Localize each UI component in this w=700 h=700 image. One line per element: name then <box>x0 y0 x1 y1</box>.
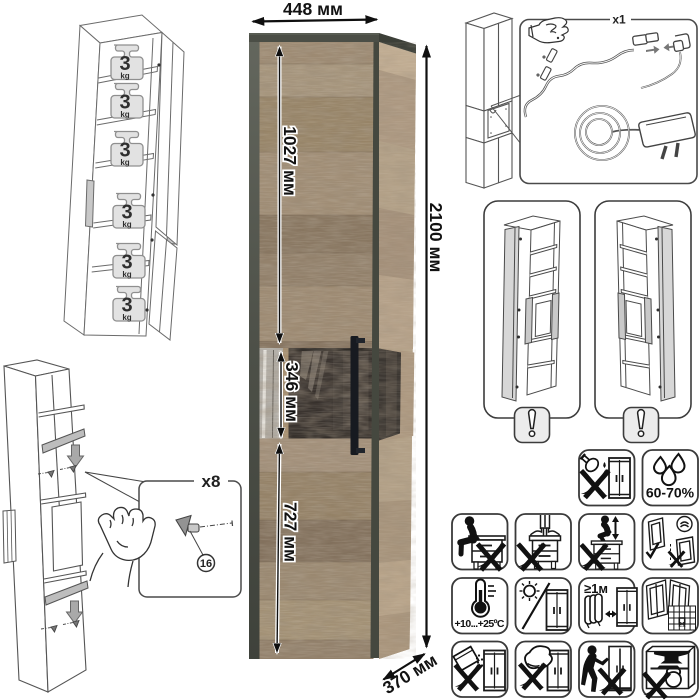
svg-text:60-70%: 60-70% <box>646 485 695 501</box>
svg-text:21: 21 <box>678 622 686 629</box>
svg-text:448 мм: 448 мм <box>283 0 343 19</box>
svg-text:346 мм: 346 мм <box>282 362 302 422</box>
svg-text:2100 мм: 2100 мм <box>426 203 446 273</box>
svg-text:x8: x8 <box>202 472 221 491</box>
svg-text:370 мм: 370 мм <box>379 650 441 698</box>
svg-text:16: 16 <box>200 558 212 570</box>
svg-text:+10...+25ºC: +10...+25ºC <box>455 618 505 630</box>
svg-text:≥1м: ≥1м <box>584 581 608 596</box>
svg-text:1027 мм: 1027 мм <box>280 126 300 196</box>
svg-text:727 мм: 727 мм <box>281 502 301 562</box>
svg-text:x1: x1 <box>612 13 626 27</box>
